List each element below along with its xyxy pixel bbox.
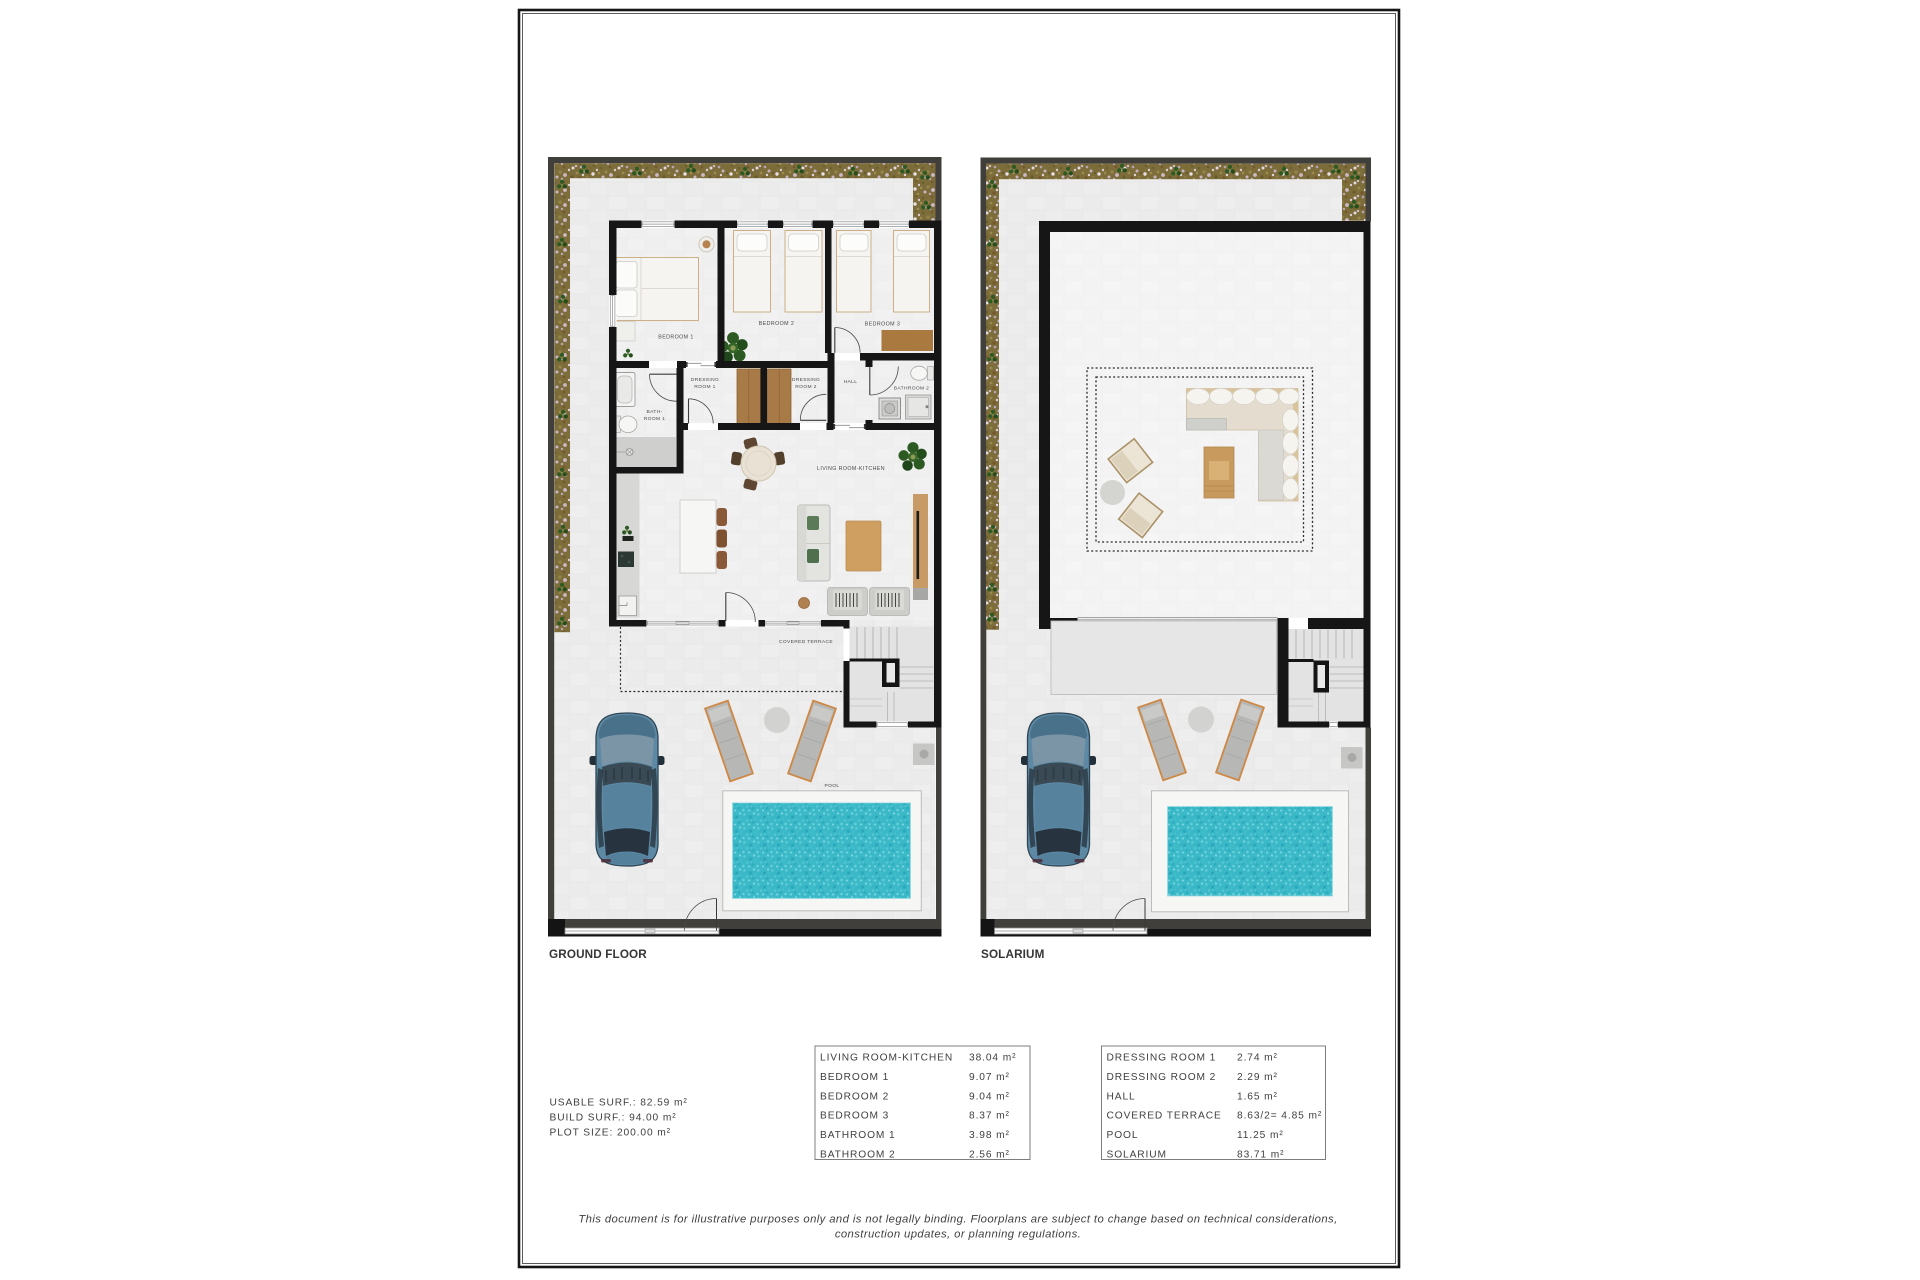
svg-text:COVERED TERRACE: COVERED TERRACE [1107,1111,1222,1122]
svg-text:DRESSING ROOM 1: DRESSING ROOM 1 [1107,1053,1217,1064]
svg-text:PLOT SIZE: 200.00 m²: PLOT SIZE: 200.00 m² [550,1128,671,1139]
svg-text:BATHROOM 1: BATHROOM 1 [820,1130,896,1141]
svg-text:SOLARIUM: SOLARIUM [1107,1150,1167,1161]
svg-text:DRESSING ROOM 2: DRESSING ROOM 2 [1107,1072,1217,1083]
svg-text:83.71 m²: 83.71 m² [1237,1150,1284,1161]
svg-text:This document is for illustrat: This document is for illustrative purpos… [578,1214,1337,1226]
svg-text:11.25 m²: 11.25 m² [1237,1130,1284,1141]
svg-text:USABLE SURF.: 82.59 m²: USABLE SURF.: 82.59 m² [550,1098,688,1109]
svg-text:DRESSING: DRESSING [691,377,719,383]
svg-text:construction updates, or plann: construction updates, or planning regula… [835,1229,1081,1241]
svg-text:BATHROOM 2: BATHROOM 2 [894,386,929,392]
svg-text:1.65 m²: 1.65 m² [1237,1091,1278,1102]
svg-text:9.04 m²: 9.04 m² [969,1091,1010,1102]
svg-text:8.37 m²: 8.37 m² [969,1111,1010,1122]
svg-text:SOLARIUM: SOLARIUM [981,948,1045,961]
svg-text:BEDROOM 1: BEDROOM 1 [658,335,693,341]
svg-text:POOL: POOL [1107,1130,1139,1141]
svg-text:BEDROOM 1: BEDROOM 1 [820,1072,889,1083]
svg-text:ROOM 1: ROOM 1 [644,416,665,422]
svg-text:BATH-: BATH- [646,409,662,415]
svg-text:ROOM 2: ROOM 2 [795,384,816,390]
svg-text:ROOM 1: ROOM 1 [694,384,715,390]
svg-text:DRESSING: DRESSING [792,377,820,383]
svg-text:HALL: HALL [844,379,858,385]
svg-text:COVERED TERRACE: COVERED TERRACE [779,639,833,645]
svg-text:BEDROOM 2: BEDROOM 2 [759,321,794,327]
svg-text:38.04 m²: 38.04 m² [969,1053,1016,1064]
svg-text:2.74 m²: 2.74 m² [1237,1053,1278,1064]
svg-text:BUILD SURF.: 94.00 m²: BUILD SURF.: 94.00 m² [550,1113,677,1124]
svg-text:LIVING ROOM-KITCHEN: LIVING ROOM-KITCHEN [820,1053,953,1064]
svg-text:2.29 m²: 2.29 m² [1237,1072,1278,1083]
svg-text:BEDROOM 3: BEDROOM 3 [820,1111,889,1122]
svg-text:HALL: HALL [1107,1091,1136,1102]
svg-text:9.07 m²: 9.07 m² [969,1072,1010,1083]
svg-text:BEDROOM 2: BEDROOM 2 [820,1091,889,1102]
svg-text:POOL: POOL [825,783,840,789]
svg-text:GROUND FLOOR: GROUND FLOOR [549,948,647,961]
svg-text:3.98 m²: 3.98 m² [969,1130,1010,1141]
svg-text:BATHROOM 2: BATHROOM 2 [820,1150,896,1161]
svg-text:LIVING ROOM-KITCHEN: LIVING ROOM-KITCHEN [817,466,885,472]
svg-text:BEDROOM 3: BEDROOM 3 [865,322,900,328]
svg-text:8.63/2= 4.85 m²: 8.63/2= 4.85 m² [1237,1111,1322,1122]
svg-text:2.56 m²: 2.56 m² [969,1150,1010,1161]
